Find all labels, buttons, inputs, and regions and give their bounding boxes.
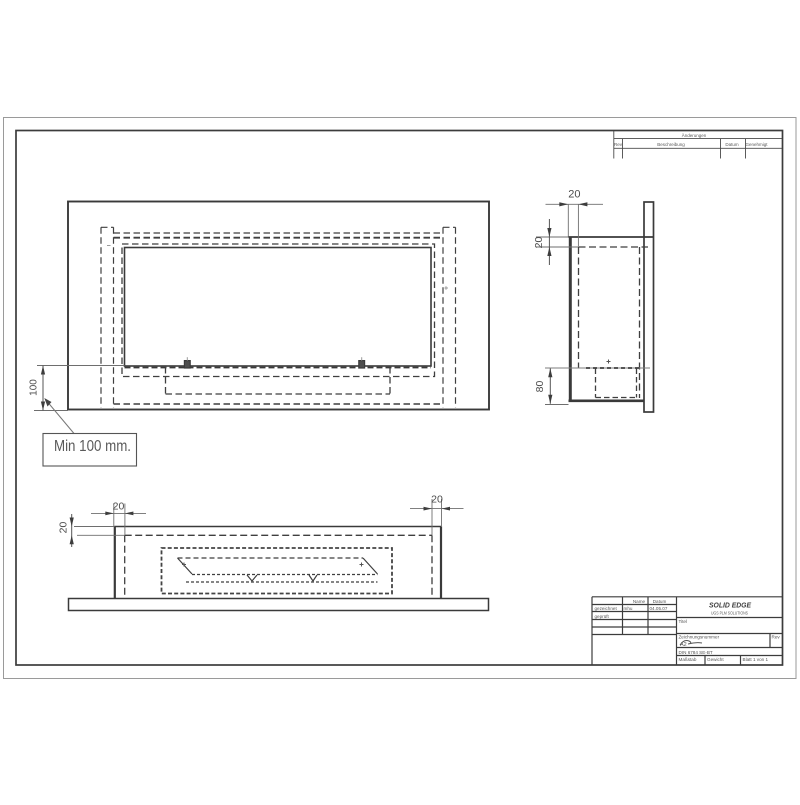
svg-text:Beschreibung: Beschreibung [657, 142, 685, 147]
svg-text:Zeichnungsnummer: Zeichnungsnummer [679, 635, 720, 640]
svg-text:Genehmigt: Genehmigt [745, 142, 768, 147]
svg-text:Änderungen: Änderungen [682, 132, 707, 138]
svg-text:20: 20 [533, 237, 545, 249]
svg-text:Rev: Rev [614, 142, 623, 147]
svg-text:A2: A2 [680, 642, 687, 648]
svg-text:Datum: Datum [653, 599, 667, 604]
svg-text:20: 20 [431, 494, 443, 506]
svg-text:SOLID EDGE: SOLID EDGE [709, 601, 752, 610]
svg-text:geprüft: geprüft [595, 614, 610, 619]
svg-text:Titel: Titel [679, 619, 688, 624]
svg-text:Rev: Rev [772, 635, 781, 640]
svg-text:Maßstab: Maßstab [679, 657, 697, 662]
svg-text:Datum: Datum [725, 142, 739, 147]
svg-text:DIN 6784 SE-BT: DIN 6784 SE-BT [679, 650, 713, 655]
svg-text:gezeichnet: gezeichnet [595, 606, 618, 611]
svg-text:Min 100 mm.: Min 100 mm. [54, 438, 131, 455]
svg-text:mhu: mhu [624, 606, 633, 611]
svg-text:20: 20 [58, 522, 70, 534]
svg-text:UGS PLM SOLUTIONS: UGS PLM SOLUTIONS [711, 611, 748, 616]
svg-text:04.05.07: 04.05.07 [650, 606, 668, 611]
svg-text:Name: Name [633, 599, 646, 604]
svg-text:Gewicht: Gewicht [707, 657, 724, 662]
svg-text:80: 80 [534, 381, 546, 393]
svg-text:20: 20 [113, 501, 125, 513]
svg-text:Blatt 1 von 1: Blatt 1 von 1 [743, 657, 769, 662]
svg-text:100: 100 [29, 379, 40, 396]
svg-text:20: 20 [568, 189, 580, 201]
